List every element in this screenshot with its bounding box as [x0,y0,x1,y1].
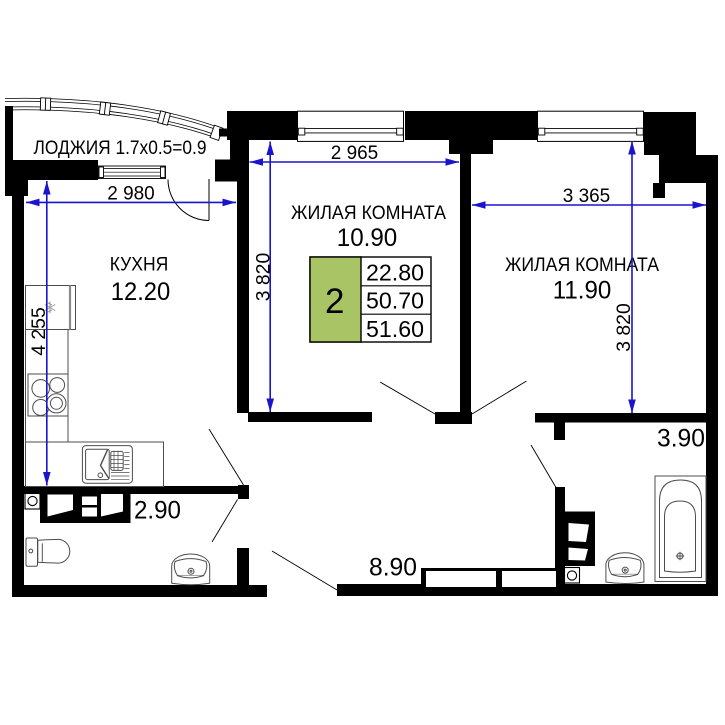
svg-text:2 965: 2 965 [331,142,379,164]
svg-text:10.90: 10.90 [337,224,398,252]
svg-text:2: 2 [325,282,344,321]
svg-text:КУХНЯ: КУХНЯ [110,255,169,276]
svg-text:51.60: 51.60 [366,316,424,342]
svg-text:ЖИЛАЯ КОМНАТА: ЖИЛАЯ КОМНАТА [505,255,659,276]
svg-text:8.90: 8.90 [369,554,417,582]
svg-text:2 980: 2 980 [107,183,155,205]
svg-text:12.20: 12.20 [111,278,171,306]
svg-text:ЖИЛАЯ КОМНАТА: ЖИЛАЯ КОМНАТА [291,203,446,224]
svg-text:2.90: 2.90 [134,497,181,525]
svg-text:3.90: 3.90 [657,425,705,453]
svg-text:4 255: 4 255 [28,307,50,356]
svg-text:3 365: 3 365 [563,185,611,207]
svg-text:3 820: 3 820 [252,253,274,302]
svg-text:11.90: 11.90 [553,277,612,305]
svg-text:22.80: 22.80 [366,259,424,285]
svg-text:50.70: 50.70 [366,288,424,314]
svg-text:3 820: 3 820 [613,303,635,352]
svg-text:ЛОДЖИЯ 1.7х0.5=0.9: ЛОДЖИЯ 1.7х0.5=0.9 [34,138,207,159]
